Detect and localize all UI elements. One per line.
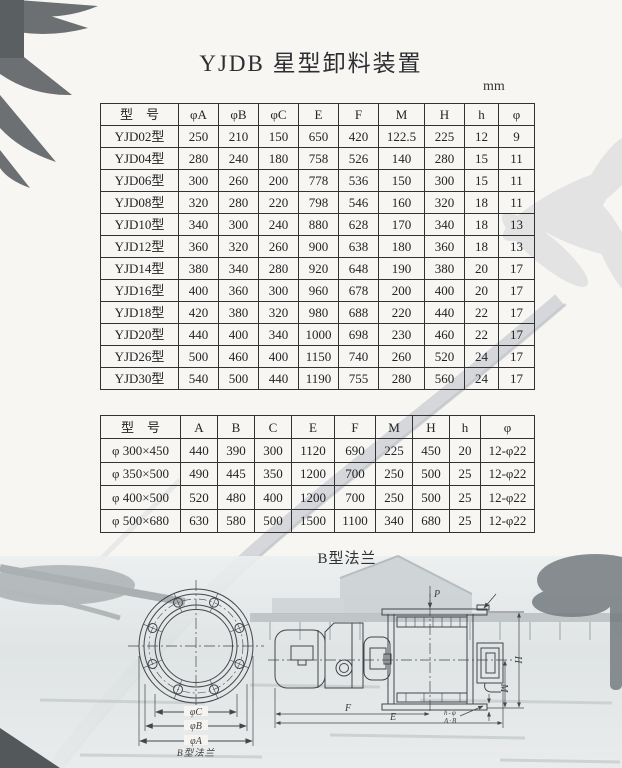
value-cell: 17 bbox=[499, 324, 535, 346]
value-cell: 17 bbox=[499, 280, 535, 302]
value-cell: 300 bbox=[219, 214, 259, 236]
value-cell: 15 bbox=[465, 148, 499, 170]
value-cell: 1100 bbox=[335, 509, 376, 532]
value-cell: 20 bbox=[450, 439, 481, 462]
column-header: H bbox=[413, 416, 450, 439]
value-cell: 526 bbox=[339, 148, 379, 170]
model-cell: YJD16型 bbox=[101, 280, 179, 302]
model-cell: YJD06型 bbox=[101, 170, 179, 192]
value-cell: 250 bbox=[376, 486, 413, 509]
value-cell: 340 bbox=[219, 258, 259, 280]
value-cell: 280 bbox=[219, 192, 259, 214]
value-cell: 230 bbox=[379, 324, 425, 346]
column-header: φA bbox=[179, 104, 219, 126]
value-cell: 900 bbox=[299, 236, 339, 258]
model-cell: YJD02型 bbox=[101, 126, 179, 148]
value-cell: 350 bbox=[255, 462, 292, 485]
value-cell: 260 bbox=[219, 170, 259, 192]
value-cell: 520 bbox=[181, 486, 218, 509]
yjd-dimensions-table: 型 号φAφBφCEFMHhφYJD02型250210150650420122.… bbox=[100, 103, 535, 390]
value-cell: 360 bbox=[179, 236, 219, 258]
value-cell: 17 bbox=[499, 258, 535, 280]
value-cell: 25 bbox=[450, 509, 481, 532]
label-e: E bbox=[389, 712, 396, 723]
value-cell: 150 bbox=[259, 126, 299, 148]
value-cell: 17 bbox=[499, 346, 535, 368]
table-row: YJD04型2802401807585261402801511 bbox=[101, 148, 535, 170]
bearing-bracket bbox=[364, 637, 391, 680]
value-cell: 400 bbox=[179, 280, 219, 302]
model-cell: φ 400×500 bbox=[101, 486, 181, 509]
value-cell: 13 bbox=[499, 214, 535, 236]
value-cell: 1150 bbox=[299, 346, 339, 368]
value-cell: 200 bbox=[379, 280, 425, 302]
value-cell: 22 bbox=[465, 302, 499, 324]
column-header: h bbox=[465, 104, 499, 126]
table-row: YJD26型50046040011507402605202417 bbox=[101, 346, 535, 368]
value-cell: 280 bbox=[259, 258, 299, 280]
flange-dim-a: φA bbox=[190, 736, 203, 747]
motor bbox=[275, 630, 325, 688]
value-cell: 500 bbox=[413, 462, 450, 485]
value-cell: 18 bbox=[465, 236, 499, 258]
value-cell: 260 bbox=[379, 346, 425, 368]
value-cell: 798 bbox=[299, 192, 339, 214]
model-cell: YJD30型 bbox=[101, 368, 179, 390]
value-cell: 500 bbox=[413, 486, 450, 509]
value-cell: 190 bbox=[379, 258, 425, 280]
value-cell: 280 bbox=[425, 148, 465, 170]
value-cell: 960 bbox=[299, 280, 339, 302]
column-header: E bbox=[292, 416, 335, 439]
value-cell: 500 bbox=[255, 509, 292, 532]
callout-line1: h-φ bbox=[444, 709, 457, 717]
value-cell: 320 bbox=[219, 236, 259, 258]
value-cell: 320 bbox=[425, 192, 465, 214]
valve-body bbox=[382, 605, 489, 710]
column-header: M bbox=[376, 416, 413, 439]
value-cell: 980 bbox=[299, 302, 339, 324]
column-header: 型 号 bbox=[101, 416, 181, 439]
value-cell: 12-φ22 bbox=[481, 462, 535, 485]
value-cell: 320 bbox=[259, 302, 299, 324]
label-p: P bbox=[433, 589, 440, 600]
value-cell: 150 bbox=[379, 170, 425, 192]
value-cell: 580 bbox=[218, 509, 255, 532]
value-cell: 170 bbox=[379, 214, 425, 236]
value-cell: 650 bbox=[299, 126, 339, 148]
technical-drawing: φC φB φA B型法兰 bbox=[0, 556, 622, 768]
label-f: F bbox=[344, 703, 352, 714]
value-cell: 880 bbox=[299, 214, 339, 236]
table-row: YJD12型3603202609006381803601813 bbox=[101, 236, 535, 258]
table-row: YJD18型4203803209806882204402217 bbox=[101, 302, 535, 324]
catalog-page: YJDB 星型卸料装置 mm 型 号φAφBφCEFMHhφYJD02型2502… bbox=[0, 0, 622, 768]
value-cell: 220 bbox=[379, 302, 425, 324]
value-cell: 20 bbox=[465, 280, 499, 302]
value-cell: 240 bbox=[219, 148, 259, 170]
model-cell: YJD08型 bbox=[101, 192, 179, 214]
table-row: φ 400×50052048040012007002505002512-φ22 bbox=[101, 486, 535, 509]
table-row: YJD16型4003603009606782004002017 bbox=[101, 280, 535, 302]
value-cell: 500 bbox=[179, 346, 219, 368]
column-header: φ bbox=[481, 416, 535, 439]
palm-frond-top-left bbox=[0, 0, 98, 188]
value-cell: 480 bbox=[218, 486, 255, 509]
value-cell: 320 bbox=[179, 192, 219, 214]
value-cell: 240 bbox=[259, 214, 299, 236]
value-cell: 440 bbox=[425, 302, 465, 324]
value-cell: 638 bbox=[339, 236, 379, 258]
column-header: F bbox=[335, 416, 376, 439]
column-header: E bbox=[299, 104, 339, 126]
value-cell: 17 bbox=[499, 368, 535, 390]
model-cell: YJD04型 bbox=[101, 148, 179, 170]
value-cell: 490 bbox=[181, 462, 218, 485]
model-cell: φ 500×680 bbox=[101, 509, 181, 532]
value-cell: 24 bbox=[465, 346, 499, 368]
value-cell: 560 bbox=[425, 368, 465, 390]
model-cell: YJD12型 bbox=[101, 236, 179, 258]
value-cell: 1200 bbox=[292, 486, 335, 509]
value-cell: 740 bbox=[339, 346, 379, 368]
table-row: YJD10型3403002408806281703401813 bbox=[101, 214, 535, 236]
value-cell: 400 bbox=[425, 280, 465, 302]
label-h: H bbox=[512, 655, 523, 664]
value-cell: 340 bbox=[376, 509, 413, 532]
value-cell: 12-φ22 bbox=[481, 509, 535, 532]
value-cell: 630 bbox=[181, 509, 218, 532]
unit-label: mm bbox=[483, 79, 505, 95]
value-cell: 690 bbox=[335, 439, 376, 462]
value-cell: 700 bbox=[335, 486, 376, 509]
value-cell: 380 bbox=[425, 258, 465, 280]
table-row: YJD20型44040034010006982304602217 bbox=[101, 324, 535, 346]
value-cell: 260 bbox=[259, 236, 299, 258]
table-row: YJD06型3002602007785361503001511 bbox=[101, 170, 535, 192]
model-cell: YJD10型 bbox=[101, 214, 179, 236]
flange-dim-b: φB bbox=[190, 721, 202, 732]
value-cell: 688 bbox=[339, 302, 379, 324]
value-cell: 122.5 bbox=[379, 126, 425, 148]
value-cell: 11 bbox=[499, 192, 535, 214]
value-cell: 22 bbox=[465, 324, 499, 346]
column-header: φB bbox=[219, 104, 259, 126]
value-cell: 440 bbox=[181, 439, 218, 462]
column-header: H bbox=[425, 104, 465, 126]
value-cell: 160 bbox=[379, 192, 425, 214]
value-cell: 340 bbox=[425, 214, 465, 236]
value-cell: 25 bbox=[450, 462, 481, 485]
value-cell: 400 bbox=[259, 346, 299, 368]
value-cell: 390 bbox=[218, 439, 255, 462]
value-cell: 698 bbox=[339, 324, 379, 346]
column-header: M bbox=[379, 104, 425, 126]
flange-caption: B型法兰 bbox=[177, 748, 216, 759]
value-cell: 180 bbox=[259, 148, 299, 170]
model-cell: YJD26型 bbox=[101, 346, 179, 368]
value-cell: 460 bbox=[219, 346, 259, 368]
value-cell: 546 bbox=[339, 192, 379, 214]
column-header: φ bbox=[499, 104, 535, 126]
page-title: YJDB 星型卸料装置 bbox=[0, 44, 622, 78]
value-cell: 648 bbox=[339, 258, 379, 280]
value-cell: 700 bbox=[335, 462, 376, 485]
value-cell: 225 bbox=[376, 439, 413, 462]
model-cell: φ 300×450 bbox=[101, 439, 181, 462]
model-cell: YJD20型 bbox=[101, 324, 179, 346]
model-cell: YJD18型 bbox=[101, 302, 179, 324]
table-row: YJD14型3803402809206481903802017 bbox=[101, 258, 535, 280]
value-cell: 300 bbox=[259, 280, 299, 302]
value-cell: 140 bbox=[379, 148, 425, 170]
flange-front-view: φC φB φA B型法兰 bbox=[128, 580, 264, 759]
value-cell: 17 bbox=[499, 302, 535, 324]
label-m: M bbox=[498, 683, 509, 693]
value-cell: 440 bbox=[179, 324, 219, 346]
value-cell: 520 bbox=[425, 346, 465, 368]
value-cell: 440 bbox=[259, 368, 299, 390]
column-header: B bbox=[218, 416, 255, 439]
value-cell: 24 bbox=[465, 368, 499, 390]
model-cell: YJD14型 bbox=[101, 258, 179, 280]
value-cell: 15 bbox=[465, 170, 499, 192]
value-cell: 12-φ22 bbox=[481, 439, 535, 462]
value-cell: 500 bbox=[219, 368, 259, 390]
value-cell: 180 bbox=[379, 236, 425, 258]
column-header: A bbox=[181, 416, 218, 439]
model-cell: φ 350×500 bbox=[101, 462, 181, 485]
gear-reducer bbox=[325, 623, 363, 688]
value-cell: 9 bbox=[499, 126, 535, 148]
value-cell: 280 bbox=[179, 148, 219, 170]
value-cell: 1120 bbox=[292, 439, 335, 462]
value-cell: 445 bbox=[218, 462, 255, 485]
value-cell: 400 bbox=[219, 324, 259, 346]
value-cell: 300 bbox=[179, 170, 219, 192]
value-cell: 628 bbox=[339, 214, 379, 236]
value-cell: 25 bbox=[450, 486, 481, 509]
value-cell: 340 bbox=[179, 214, 219, 236]
value-cell: 755 bbox=[339, 368, 379, 390]
header-row: 型 号ABCEFMHhφ bbox=[101, 416, 535, 439]
value-cell: 400 bbox=[255, 486, 292, 509]
value-cell: 420 bbox=[339, 126, 379, 148]
value-cell: 420 bbox=[179, 302, 219, 324]
value-cell: 250 bbox=[376, 462, 413, 485]
table-row: YJD08型3202802207985461603201811 bbox=[101, 192, 535, 214]
value-cell: 18 bbox=[465, 192, 499, 214]
value-cell: 1190 bbox=[299, 368, 339, 390]
value-cell: 300 bbox=[425, 170, 465, 192]
table-row: φ 350×50049044535012007002505002512-φ22 bbox=[101, 462, 535, 485]
value-cell: 678 bbox=[339, 280, 379, 302]
value-cell: 1200 bbox=[292, 462, 335, 485]
value-cell: 20 bbox=[465, 258, 499, 280]
value-cell: 1000 bbox=[299, 324, 339, 346]
value-cell: 225 bbox=[425, 126, 465, 148]
value-cell: 540 bbox=[179, 368, 219, 390]
table-row: φ 300×45044039030011206902254502012-φ22 bbox=[101, 439, 535, 462]
value-cell: 360 bbox=[425, 236, 465, 258]
valve-side-view: P H M h-φ A·B bbox=[268, 586, 524, 728]
value-cell: 11 bbox=[499, 170, 535, 192]
value-cell: 250 bbox=[179, 126, 219, 148]
column-header: φC bbox=[259, 104, 299, 126]
value-cell: 778 bbox=[299, 170, 339, 192]
value-cell: 210 bbox=[219, 126, 259, 148]
value-cell: 340 bbox=[259, 324, 299, 346]
value-cell: 220 bbox=[259, 192, 299, 214]
value-cell: 280 bbox=[379, 368, 425, 390]
value-cell: 12-φ22 bbox=[481, 486, 535, 509]
table-row: φ 500×680630580500150011003406802512-φ22 bbox=[101, 509, 535, 532]
value-cell: 11 bbox=[499, 148, 535, 170]
table-row: YJD30型54050044011907552805602417 bbox=[101, 368, 535, 390]
column-header: h bbox=[450, 416, 481, 439]
value-cell: 300 bbox=[255, 439, 292, 462]
header-row: 型 号φAφBφCEFMHhφ bbox=[101, 104, 535, 126]
value-cell: 1500 bbox=[292, 509, 335, 532]
value-cell: 13 bbox=[499, 236, 535, 258]
value-cell: 12 bbox=[465, 126, 499, 148]
column-header: 型 号 bbox=[101, 104, 179, 126]
table-row: YJD02型250210150650420122.5225129 bbox=[101, 126, 535, 148]
value-cell: 536 bbox=[339, 170, 379, 192]
flange-dim-c: φC bbox=[190, 707, 203, 718]
value-cell: 450 bbox=[413, 439, 450, 462]
value-cell: 758 bbox=[299, 148, 339, 170]
value-cell: 680 bbox=[413, 509, 450, 532]
value-cell: 920 bbox=[299, 258, 339, 280]
flange-dimensions-table: 型 号ABCEFMHhφφ 300×4504403903001120690225… bbox=[100, 415, 535, 533]
value-cell: 380 bbox=[179, 258, 219, 280]
column-header: C bbox=[255, 416, 292, 439]
value-cell: 18 bbox=[465, 214, 499, 236]
callout-line2: A·B bbox=[443, 717, 457, 725]
value-cell: 360 bbox=[219, 280, 259, 302]
column-header: F bbox=[339, 104, 379, 126]
value-cell: 460 bbox=[425, 324, 465, 346]
value-cell: 200 bbox=[259, 170, 299, 192]
value-cell: 380 bbox=[219, 302, 259, 324]
